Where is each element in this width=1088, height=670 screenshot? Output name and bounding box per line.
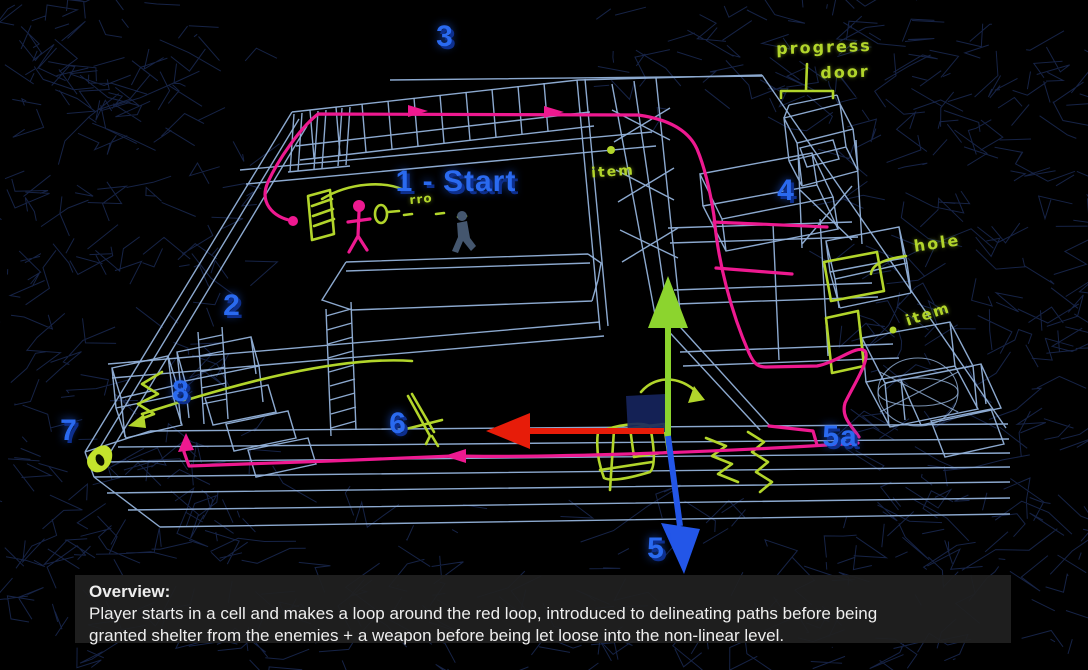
note-item-top: item xyxy=(591,162,636,181)
path-arrowhead xyxy=(444,449,466,463)
path-arrowhead xyxy=(178,433,194,452)
item-dot-icon xyxy=(607,146,615,154)
wireframe-scene xyxy=(0,0,1088,670)
sword-icon xyxy=(402,394,442,446)
down-arrow-icon xyxy=(668,436,680,526)
label-4: 4 xyxy=(777,174,795,208)
label-3: 3 xyxy=(436,20,454,54)
hole-rect-icon xyxy=(824,252,884,301)
label-7: 7 xyxy=(60,414,78,448)
background-wireframe xyxy=(0,0,1088,670)
note-door: door xyxy=(820,62,870,83)
player-stick-figure-icon xyxy=(348,200,370,252)
npc-silhouette-icon xyxy=(452,211,476,253)
overview-line2: granted shelter from the enemies + a wea… xyxy=(89,625,997,647)
overview-title: Overview: xyxy=(89,581,997,603)
note-progress: progress xyxy=(776,36,872,58)
note-rro: rro xyxy=(409,191,433,207)
ledge-arc-line xyxy=(322,184,404,199)
item-dot-icon xyxy=(890,327,897,334)
level-viewport[interactable]: 1 - Start 3 2 8 7 6 4 5a 5 progress door… xyxy=(0,0,1088,670)
grate-hatch-icon xyxy=(308,190,334,240)
overview-line1: Player starts in a cell and makes a loop… xyxy=(89,603,997,625)
axis-gizmo xyxy=(486,276,700,574)
label-5: 5 xyxy=(647,532,665,566)
overview-panel: Overview: Player starts in a cell and ma… xyxy=(75,575,1011,643)
label-8: 8 xyxy=(172,375,190,409)
label-2: 2 xyxy=(223,289,241,323)
label-5a: 5a xyxy=(822,420,857,454)
megaphone-icon xyxy=(375,205,387,223)
label-6: 6 xyxy=(389,407,407,441)
curved-arrowhead xyxy=(688,386,705,403)
